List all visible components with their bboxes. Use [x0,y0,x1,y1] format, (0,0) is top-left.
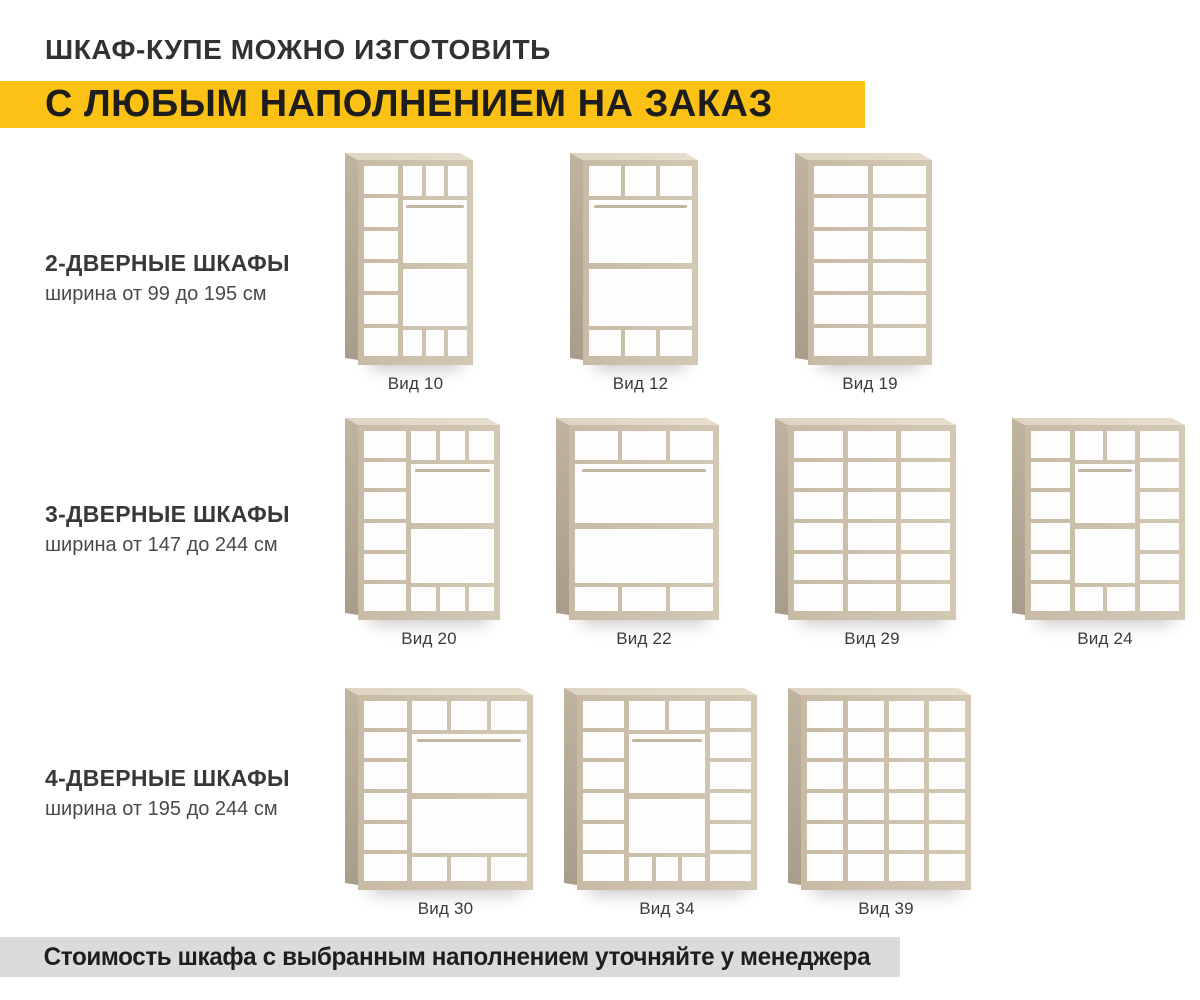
shelf-cell [807,701,843,728]
wardrobe-interior [794,431,950,611]
open-space [589,269,692,326]
shelf-cell [889,762,925,789]
shelf-column [583,701,624,881]
hanging-space-with-rod [412,734,527,793]
hanging-column [412,701,527,881]
wardrobe-side-panel [570,153,583,360]
shelf-cell [583,701,624,728]
wardrobe-caption: Вид 20 [401,629,457,649]
bottom-compartments [403,330,467,356]
shelf-cell [929,701,965,728]
shelf-cell [814,166,868,194]
hanging-column [1075,431,1134,611]
shelf-cell [794,554,843,581]
shelf-cell [710,701,751,728]
wardrobe-image [358,695,533,890]
shelf-column [710,701,751,881]
wardrobe-interior [1031,431,1179,611]
shelf-cell [889,701,925,728]
wardrobe-figure: Вид 12 [583,160,698,394]
shelf-cell [794,492,843,519]
compartment-cell [1107,587,1135,611]
shelf-cell [1140,554,1179,581]
shelf-cell [364,584,406,611]
shelf-column [364,431,406,611]
shelf-cell [807,762,843,789]
wardrobe-top-panel [1012,418,1185,425]
shelf-cell [807,854,843,881]
wardrobe-caption: Вид 39 [858,899,914,919]
wardrobe-image [358,425,500,620]
wardrobe-figure: Вид 10 [358,160,473,394]
wardrobe-image [1025,425,1185,620]
wardrobe-row-2door: 2-ДВЕРНЫЕ ШКАФЫ ширина от 99 до 195 см В… [0,160,1200,394]
shelf-cell [929,762,965,789]
shelf-cell [1031,492,1070,519]
wardrobe-side-panel [775,418,788,615]
shelf-cell [583,824,624,851]
wardrobe-interior [589,166,692,356]
shelf-cell [814,198,868,226]
top-compartments [403,166,467,196]
shelf-cell [1140,584,1179,611]
wardrobe-image [577,695,757,890]
shelf-cell [873,166,927,194]
shelf-cell [710,824,751,851]
wardrobe-figure: Вид 20 [358,425,500,649]
wardrobe-row-3door: 3-ДВЕРНЫЕ ШКАФЫ ширина от 147 до 244 см … [0,425,1200,649]
shelf-cell [583,793,624,820]
compartment-cell [451,701,487,730]
row-title: 3-ДВЕРНЫЕ ШКАФЫ [45,501,320,528]
shelf-cell [364,328,398,356]
shelf-column [873,166,927,356]
wardrobe-figure: Вид 34 [577,695,757,919]
shelf-cell [848,492,897,519]
hanging-column [629,701,706,881]
wardrobe-figure: Вид 30 [358,695,533,919]
shelf-cell [1140,431,1179,458]
shelf-cell [710,854,751,881]
compartment-cell [426,330,445,356]
shelf-cell [873,328,927,356]
hanging-column [411,431,494,611]
row-label: 2-ДВЕРНЫЕ ШКАФЫ ширина от 99 до 195 см [0,160,320,306]
shelf-cell [364,732,407,759]
shelf-cell [848,762,884,789]
page-title: ШКАФ-КУПЕ МОЖНО ИЗГОТОВИТЬ [45,34,551,66]
bottom-compartments [629,857,706,881]
shelf-cell [901,462,950,489]
shelf-cell [901,523,950,550]
wardrobe-interior [814,166,926,356]
compartment-cell [469,431,494,460]
wardrobe-image [808,160,932,365]
compartment-cell [440,587,465,611]
shelf-cell [364,701,407,728]
compartment-cell [448,330,467,356]
wardrobe-top-panel [556,418,719,425]
open-space [1075,529,1134,583]
top-compartments [629,701,706,730]
shelf-cell [364,263,398,291]
wardrobe-interior [583,701,751,881]
open-space [629,799,706,853]
compartment-cell [660,166,692,196]
compartment-cell [491,701,527,730]
shelf-cell [848,854,884,881]
bottom-compartments [411,587,494,611]
compartment-cell [629,857,652,881]
wardrobe-side-panel [345,418,358,615]
row-items: Вид 30Вид 34Вид 39 [320,695,971,919]
row-label: 4-ДВЕРНЫЕ ШКАФЫ ширина от 195 до 244 см [0,695,320,821]
shelf-cell [848,523,897,550]
shelf-cell [794,584,843,611]
shelf-cell [814,263,868,291]
shelf-cell [901,431,950,458]
shelf-cell [1031,554,1070,581]
wardrobe-interior [575,431,713,611]
shelf-cell [873,231,927,259]
hanging-space-with-rod [411,464,494,523]
shelf-cell [794,523,843,550]
shelf-column [1140,431,1179,611]
shelf-cell [814,328,868,356]
shelf-cell [929,824,965,851]
open-space [575,529,713,583]
shelf-cell [364,431,406,458]
shelf-cell [794,431,843,458]
shelf-cell [364,523,406,550]
open-space [403,269,467,326]
shelf-cell [873,198,927,226]
shelf-column [364,701,407,881]
shelf-column [1031,431,1070,611]
wardrobe-top-panel [564,688,757,695]
top-compartments [412,701,527,730]
wardrobe-caption: Вид 29 [844,629,900,649]
wardrobe-figure: Вид 19 [808,160,932,394]
shelf-cell [873,263,927,291]
row-items: Вид 20Вид 22Вид 29Вид 24 [320,425,1185,649]
shelf-cell [848,584,897,611]
wardrobe-image [358,160,473,365]
shelf-cell [807,824,843,851]
shelf-cell [1031,431,1070,458]
wardrobe-caption: Вид 19 [842,374,898,394]
shelf-cell [889,793,925,820]
row-subtitle: ширина от 195 до 244 см [45,798,320,821]
wardrobe-image [583,160,698,365]
shelf-column [929,701,965,881]
compartment-cell [589,166,621,196]
compartment-cell [451,857,487,881]
open-space [411,529,494,583]
page-subtitle: С ЛЮБЫМ НАПОЛНЕНИЕМ НА ЗАКАЗ [0,83,773,126]
wardrobe-figure: Вид 22 [569,425,719,649]
compartment-cell [629,701,665,730]
bottom-compartments [1075,587,1134,611]
hanging-space-with-rod [629,734,706,793]
shelf-cell [364,824,407,851]
shelf-cell [929,793,965,820]
shelf-column [794,431,843,611]
wardrobe-interior [364,431,494,611]
wardrobe-side-panel [556,418,569,615]
wardrobe-interior [364,701,527,881]
shelf-cell [364,854,407,881]
compartment-cell [1107,431,1135,460]
shelf-cell [1031,584,1070,611]
compartment-cell [669,701,705,730]
top-compartments [589,166,692,196]
wardrobe-top-panel [788,688,971,695]
shelf-cell [807,793,843,820]
row-label: 3-ДВЕРНЫЕ ШКАФЫ ширина от 147 до 244 см [0,425,320,557]
compartment-cell [403,166,422,196]
shelf-cell [710,793,751,820]
compartment-cell [412,701,448,730]
shelf-cell [583,732,624,759]
shelf-cell [889,824,925,851]
shelf-cell [364,554,406,581]
hanging-space-with-rod [403,200,467,262]
shelf-cell [1140,462,1179,489]
compartment-cell [448,166,467,196]
shelf-cell [848,462,897,489]
bottom-compartments [589,330,692,356]
footer-note-bar: Стоимость шкафа с выбранным наполнением … [0,937,900,977]
top-compartments [411,431,494,460]
hanging-column [575,431,713,611]
wardrobe-side-panel [795,153,808,360]
hanging-space-with-rod [589,200,692,262]
shelf-column [889,701,925,881]
compartment-cell [469,587,494,611]
row-items: Вид 10Вид 12Вид 19 [320,160,932,394]
compartment-cell [440,431,465,460]
hanging-space-with-rod [1075,464,1134,523]
compartment-cell [660,330,692,356]
wardrobe-interior [807,701,965,881]
shelf-cell [807,732,843,759]
shelf-cell [848,554,897,581]
shelf-cell [848,732,884,759]
shelf-cell [364,295,398,323]
shelf-cell [364,166,398,194]
compartment-cell [411,587,436,611]
wardrobe-figure: Вид 29 [788,425,956,649]
compartment-cell [575,587,618,611]
compartment-cell [403,330,422,356]
compartment-cell [412,857,448,881]
wardrobe-top-panel [775,418,956,425]
shelf-cell [1140,492,1179,519]
shelf-cell [1140,523,1179,550]
shelf-cell [710,732,751,759]
compartment-cell [682,857,705,881]
wardrobe-side-panel [345,688,358,885]
wardrobe-image [569,425,719,620]
compartment-cell [622,587,665,611]
hanging-column [589,166,692,356]
compartment-cell [589,330,621,356]
shelf-column [807,701,843,881]
wardrobe-top-panel [345,153,473,160]
shelf-cell [848,701,884,728]
compartment-cell [670,587,713,611]
shelf-cell [901,584,950,611]
shelf-cell [901,554,950,581]
wardrobe-side-panel [1012,418,1025,615]
row-subtitle: ширина от 99 до 195 см [45,283,320,306]
wardrobe-interior [364,166,467,356]
wardrobe-caption: Вид 24 [1077,629,1133,649]
wardrobe-caption: Вид 12 [613,374,669,394]
shelf-cell [364,793,407,820]
bottom-compartments [575,587,713,611]
shelf-cell [710,762,751,789]
wardrobe-caption: Вид 10 [388,374,444,394]
shelf-cell [364,762,407,789]
compartment-cell [1075,431,1103,460]
compartment-cell [622,431,665,460]
bottom-compartments [412,857,527,881]
row-subtitle: ширина от 147 до 244 см [45,534,320,557]
compartment-cell [575,431,618,460]
compartment-cell [411,431,436,460]
shelf-column [814,166,868,356]
shelf-cell [848,793,884,820]
hanging-space-with-rod [575,464,713,523]
top-compartments [1075,431,1134,460]
row-title: 4-ДВЕРНЫЕ ШКАФЫ [45,765,320,792]
shelf-cell [889,854,925,881]
compartment-cell [656,857,679,881]
row-title: 2-ДВЕРНЫЕ ШКАФЫ [45,250,320,277]
shelf-cell [794,462,843,489]
wardrobe-side-panel [788,688,801,885]
wardrobe-top-panel [795,153,932,160]
compartment-cell [670,431,713,460]
shelf-cell [848,431,897,458]
wardrobe-image [788,425,956,620]
shelf-cell [873,295,927,323]
shelf-cell [814,231,868,259]
wardrobe-row-4door: 4-ДВЕРНЫЕ ШКАФЫ ширина от 195 до 244 см … [0,695,1200,919]
open-space [412,799,527,853]
shelf-cell [1031,462,1070,489]
shelf-cell [814,295,868,323]
shelf-cell [364,492,406,519]
compartment-cell [426,166,445,196]
shelf-cell [929,854,965,881]
footer-note: Стоимость шкафа с выбранным наполнением … [0,943,870,972]
wardrobe-figure: Вид 24 [1025,425,1185,649]
catalog-page: ШКАФ-КУПЕ МОЖНО ИЗГОТОВИТЬ С ЛЮБЫМ НАПОЛ… [0,0,1200,1000]
compartment-cell [1075,587,1103,611]
shelf-cell [583,854,624,881]
compartment-cell [625,166,657,196]
compartment-cell [491,857,527,881]
wardrobe-caption: Вид 30 [418,899,474,919]
page-subtitle-highlight: С ЛЮБЫМ НАПОЛНЕНИЕМ НА ЗАКАЗ [0,81,865,128]
shelf-cell [364,462,406,489]
shelf-column [901,431,950,611]
shelf-cell [583,762,624,789]
shelf-cell [889,732,925,759]
shelf-cell [1031,523,1070,550]
top-compartments [575,431,713,460]
wardrobe-image [801,695,971,890]
shelf-cell [364,198,398,226]
shelf-cell [848,824,884,851]
hanging-column [403,166,467,356]
compartment-cell [625,330,657,356]
shelf-column [848,701,884,881]
shelf-cell [901,492,950,519]
wardrobe-top-panel [345,418,500,425]
wardrobe-caption: Вид 34 [639,899,695,919]
shelf-cell [929,732,965,759]
wardrobe-top-panel [345,688,533,695]
wardrobe-side-panel [564,688,577,885]
wardrobe-figure: Вид 39 [801,695,971,919]
wardrobe-top-panel [570,153,698,160]
shelf-cell [364,231,398,259]
wardrobe-side-panel [345,153,358,360]
shelf-column [848,431,897,611]
wardrobe-caption: Вид 22 [616,629,672,649]
shelf-column [364,166,398,356]
